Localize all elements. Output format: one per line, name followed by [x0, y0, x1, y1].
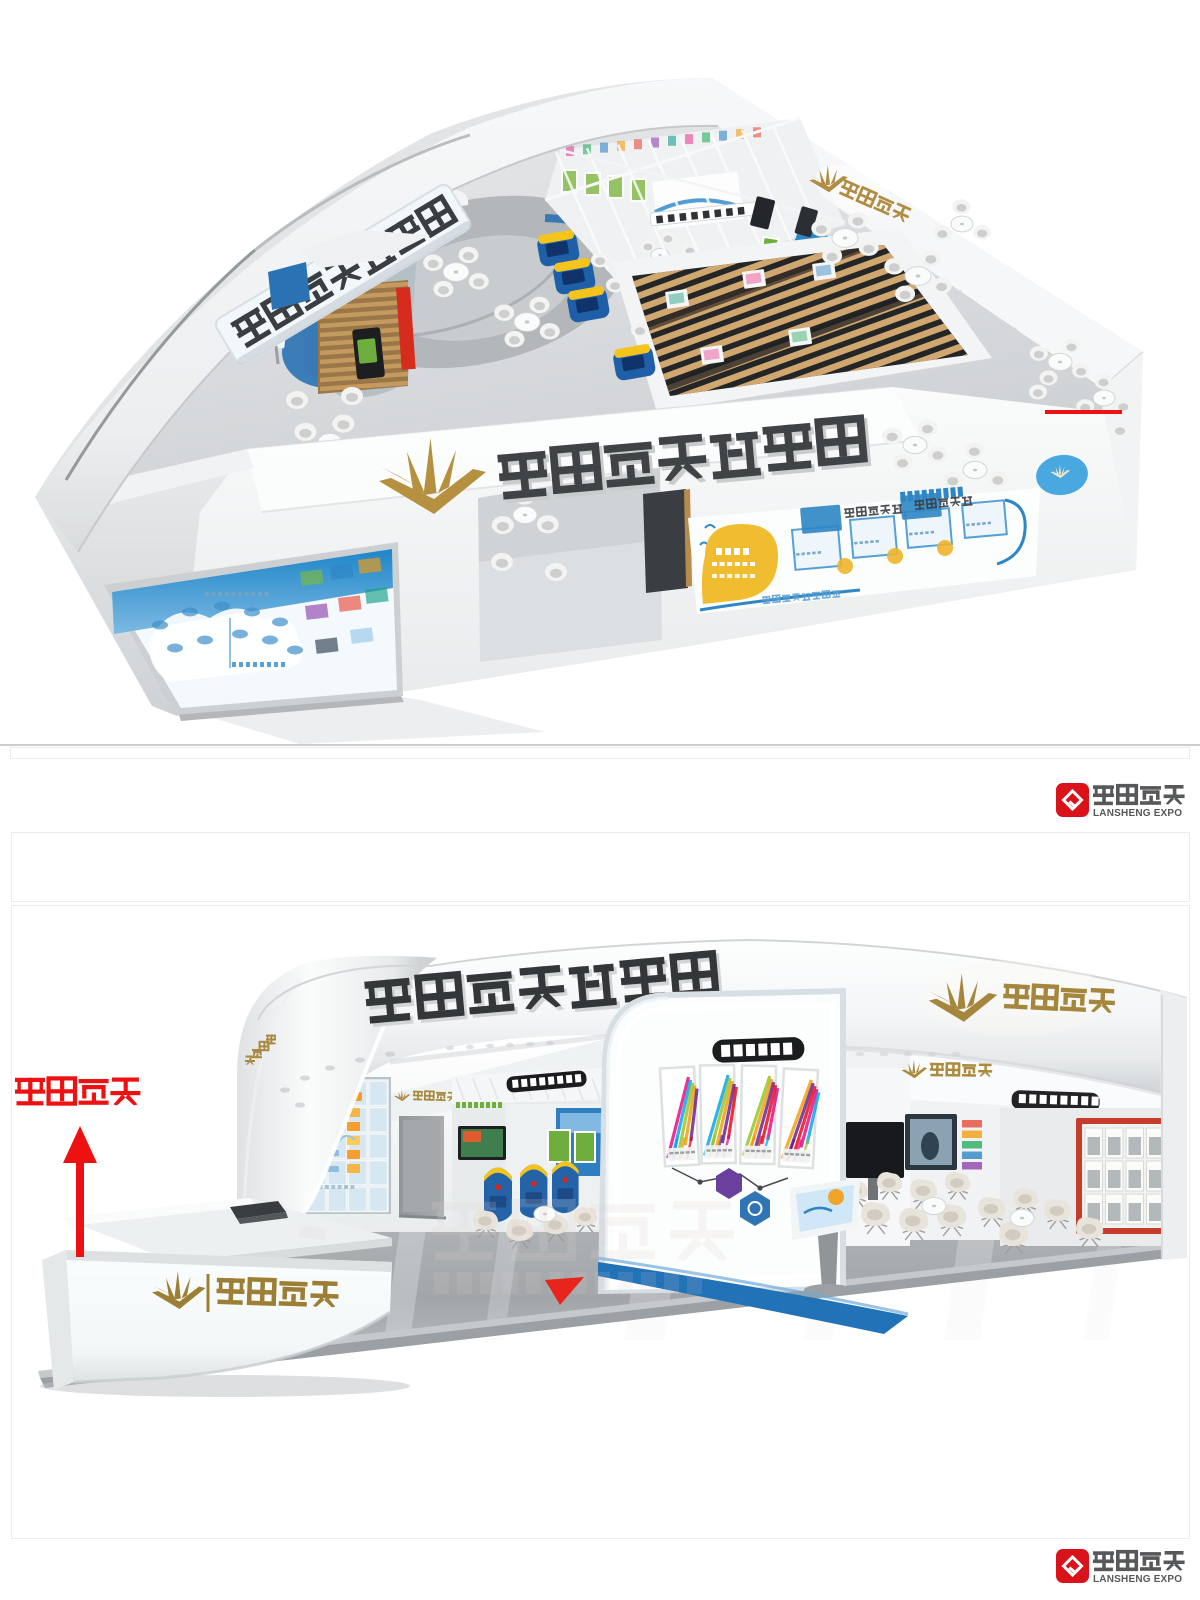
svg-text:LANSHENG EXPO: LANSHENG EXPO [1093, 1574, 1182, 1585]
svg-text:LANSHENG EXPO: LANSHENG EXPO [1093, 808, 1182, 819]
